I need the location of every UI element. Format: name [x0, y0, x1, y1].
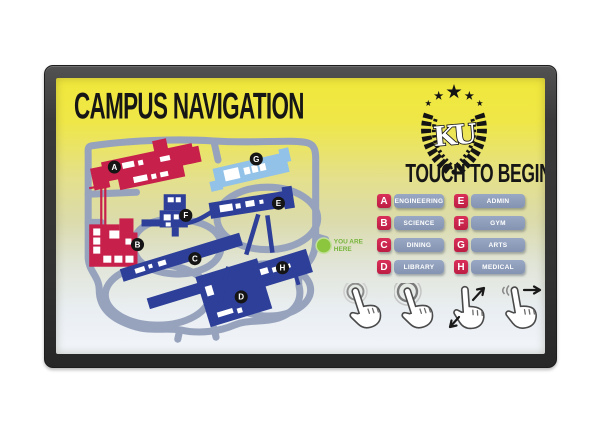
legend-item-engineering[interactable]: A ENGINEERING: [377, 194, 444, 208]
legend-item-science[interactable]: B SCIENCE: [377, 216, 444, 230]
tap-gesture-icon: [342, 283, 388, 337]
svg-text:G: G: [253, 155, 259, 164]
marker-h: H: [276, 261, 289, 274]
legend-column-left: A ENGINEERING B SCIENCE C DINING D LIBRA…: [377, 194, 444, 274]
building-science[interactable]: [89, 218, 137, 266]
svg-text:A: A: [111, 163, 117, 172]
legend-item-arts[interactable]: G ARTS: [454, 238, 525, 252]
gesture-instructions: [342, 283, 544, 337]
legend-item-admin[interactable]: E ADMIN: [454, 194, 525, 208]
you-are-here-marker: YOU ARE HERE: [316, 238, 363, 253]
swipe-right-gesture-icon: [498, 283, 544, 337]
svg-text:F: F: [183, 211, 188, 220]
legend-item-library[interactable]: D LIBRARY: [377, 260, 444, 274]
page-title: CAMPUS NAVIGATION: [74, 86, 304, 128]
svg-text:D: D: [238, 293, 244, 302]
legend-column-right: E ADMIN F GYM G ARTS H MEDICAL: [454, 194, 525, 274]
svg-text:HERE: HERE: [334, 246, 353, 253]
legend-item-medical[interactable]: H MEDICAL: [454, 260, 525, 274]
crest-stars-icon: [425, 84, 483, 106]
marker-e: E: [272, 197, 285, 210]
ku-monogram: KU: [432, 118, 478, 153]
kiosk-touch-screen[interactable]: CAMPUS NAVIGATION: [56, 78, 545, 354]
svg-text:C: C: [192, 254, 198, 263]
touch-to-begin[interactable]: TOUCH TO BEGIN: [374, 159, 534, 188]
legend-key: D: [377, 260, 391, 274]
legend-label: MEDICAL: [471, 260, 525, 274]
double-tap-gesture-icon: [394, 283, 440, 337]
marker-a: A: [108, 161, 121, 174]
legend-label: LIBRARY: [394, 260, 444, 274]
legend-label: ARTS: [471, 238, 525, 252]
svg-text:YOU ARE: YOU ARE: [334, 239, 363, 246]
marker-g: G: [250, 152, 263, 165]
svg-text:H: H: [280, 264, 286, 273]
legend-key: E: [454, 194, 468, 208]
svg-text:B: B: [135, 240, 141, 249]
legend-label: DINING: [394, 238, 444, 252]
building-legend: A ENGINEERING B SCIENCE C DINING D LIBRA…: [377, 194, 525, 274]
marker-b: B: [131, 238, 144, 251]
legend-key: F: [454, 216, 468, 230]
marker-f: F: [179, 209, 192, 222]
legend-label: GYM: [471, 216, 525, 230]
legend-key: B: [377, 216, 391, 230]
campus-map[interactable]: A G E F B C H D YOU ARE HERE: [61, 125, 363, 343]
legend-key: C: [377, 238, 391, 252]
legend-label: ENGINEERING: [394, 194, 444, 208]
marker-d: D: [235, 290, 248, 303]
pinch-zoom-gesture-icon: [446, 283, 492, 337]
legend-key: A: [377, 194, 391, 208]
legend-key: H: [454, 260, 468, 274]
display-bezel: CAMPUS NAVIGATION: [44, 65, 557, 368]
legend-label: ADMIN: [471, 194, 525, 208]
page-background: CAMPUS NAVIGATION: [0, 0, 600, 430]
legend-item-gym[interactable]: F GYM: [454, 216, 525, 230]
legend-item-dining[interactable]: C DINING: [377, 238, 444, 252]
svg-text:E: E: [276, 199, 282, 208]
legend-label: SCIENCE: [394, 216, 444, 230]
legend-key: G: [454, 238, 468, 252]
touch-to-begin-label: TOUCH TO BEGIN: [405, 159, 545, 189]
marker-c: C: [188, 252, 201, 265]
